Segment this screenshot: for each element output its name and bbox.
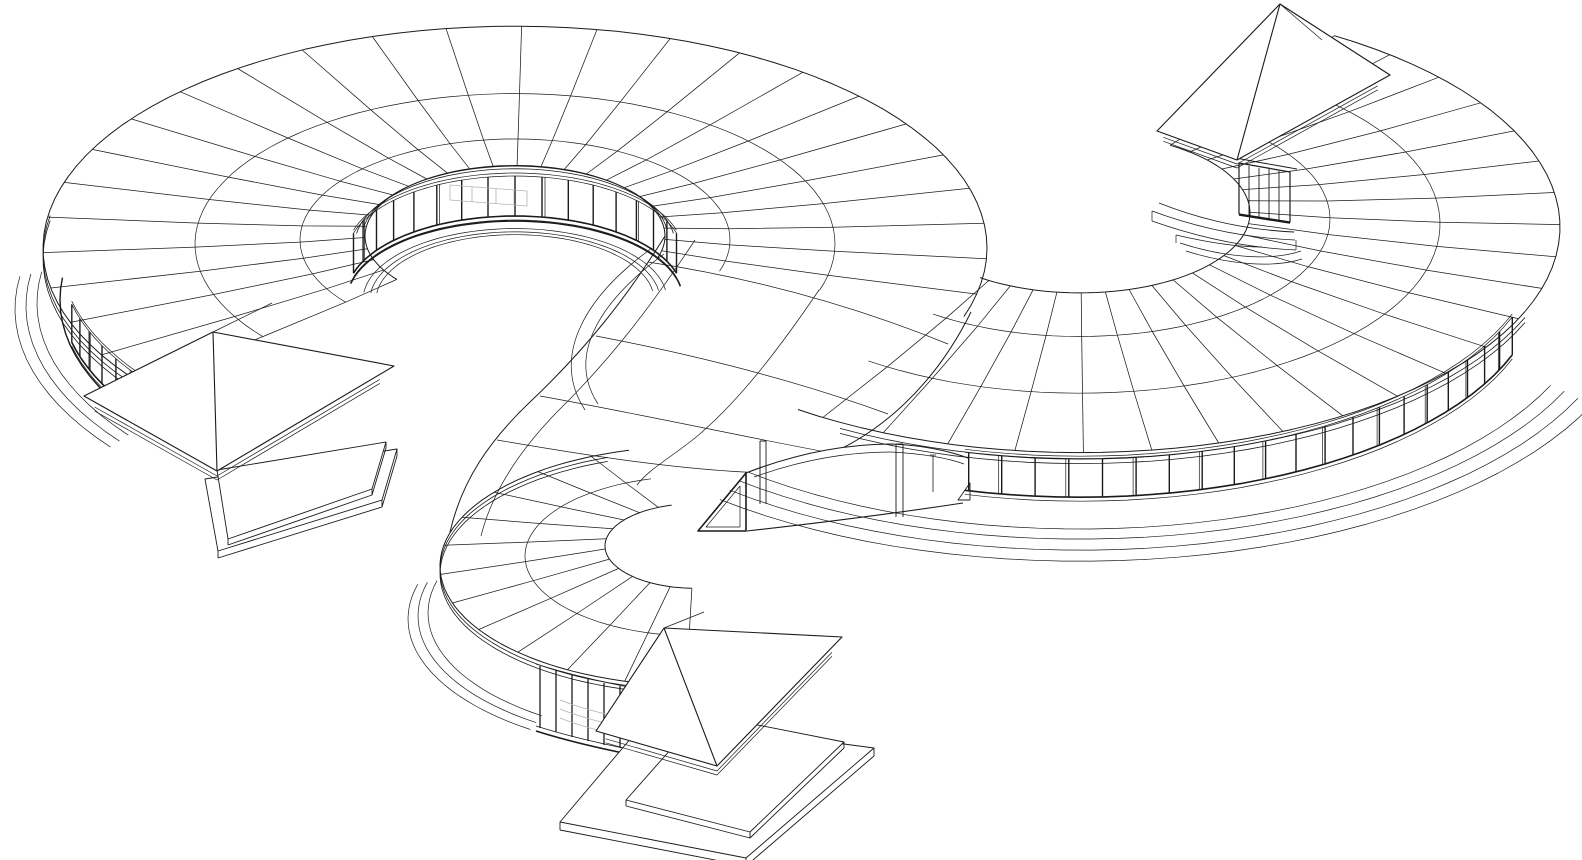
drawing-page [0,0,1582,860]
ring-b-eave-fascia [840,318,1525,464]
interior-hints [450,185,636,738]
architectural-axonometric-drawing [0,0,1582,860]
hook-outer-terraces [408,581,542,730]
ring-b-south-window-band [965,314,1513,501]
pavilion-3-pyramid [1157,4,1390,168]
hook-eave-fascia [440,457,673,693]
ring-b-roof-mesh [798,36,1560,453]
